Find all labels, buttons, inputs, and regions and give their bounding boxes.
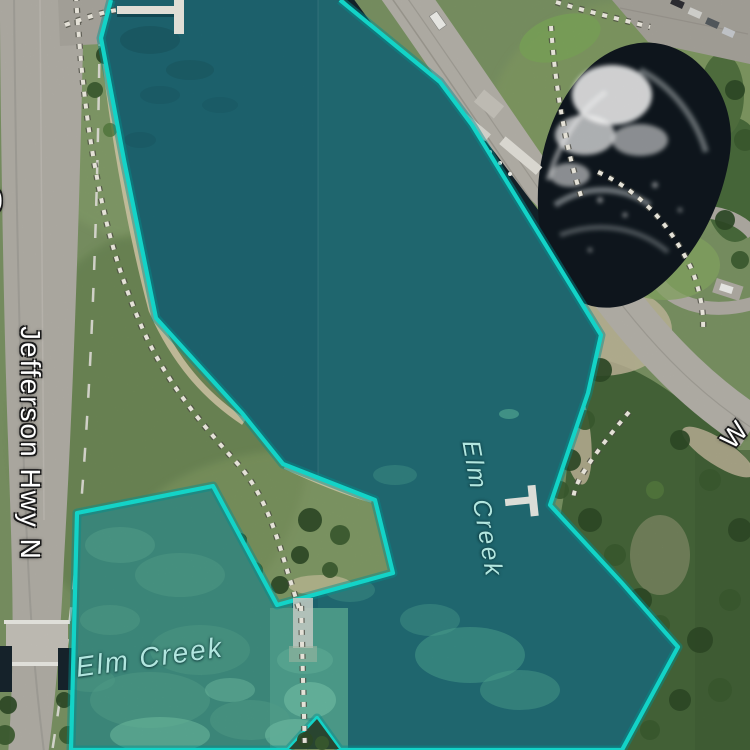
- imagery-grain: [0, 0, 750, 750]
- satellite-map-canvas[interactable]: Jefferson Hwy N Elm Creek Elm Creek W 0: [0, 0, 750, 750]
- map-imagery: [0, 0, 750, 750]
